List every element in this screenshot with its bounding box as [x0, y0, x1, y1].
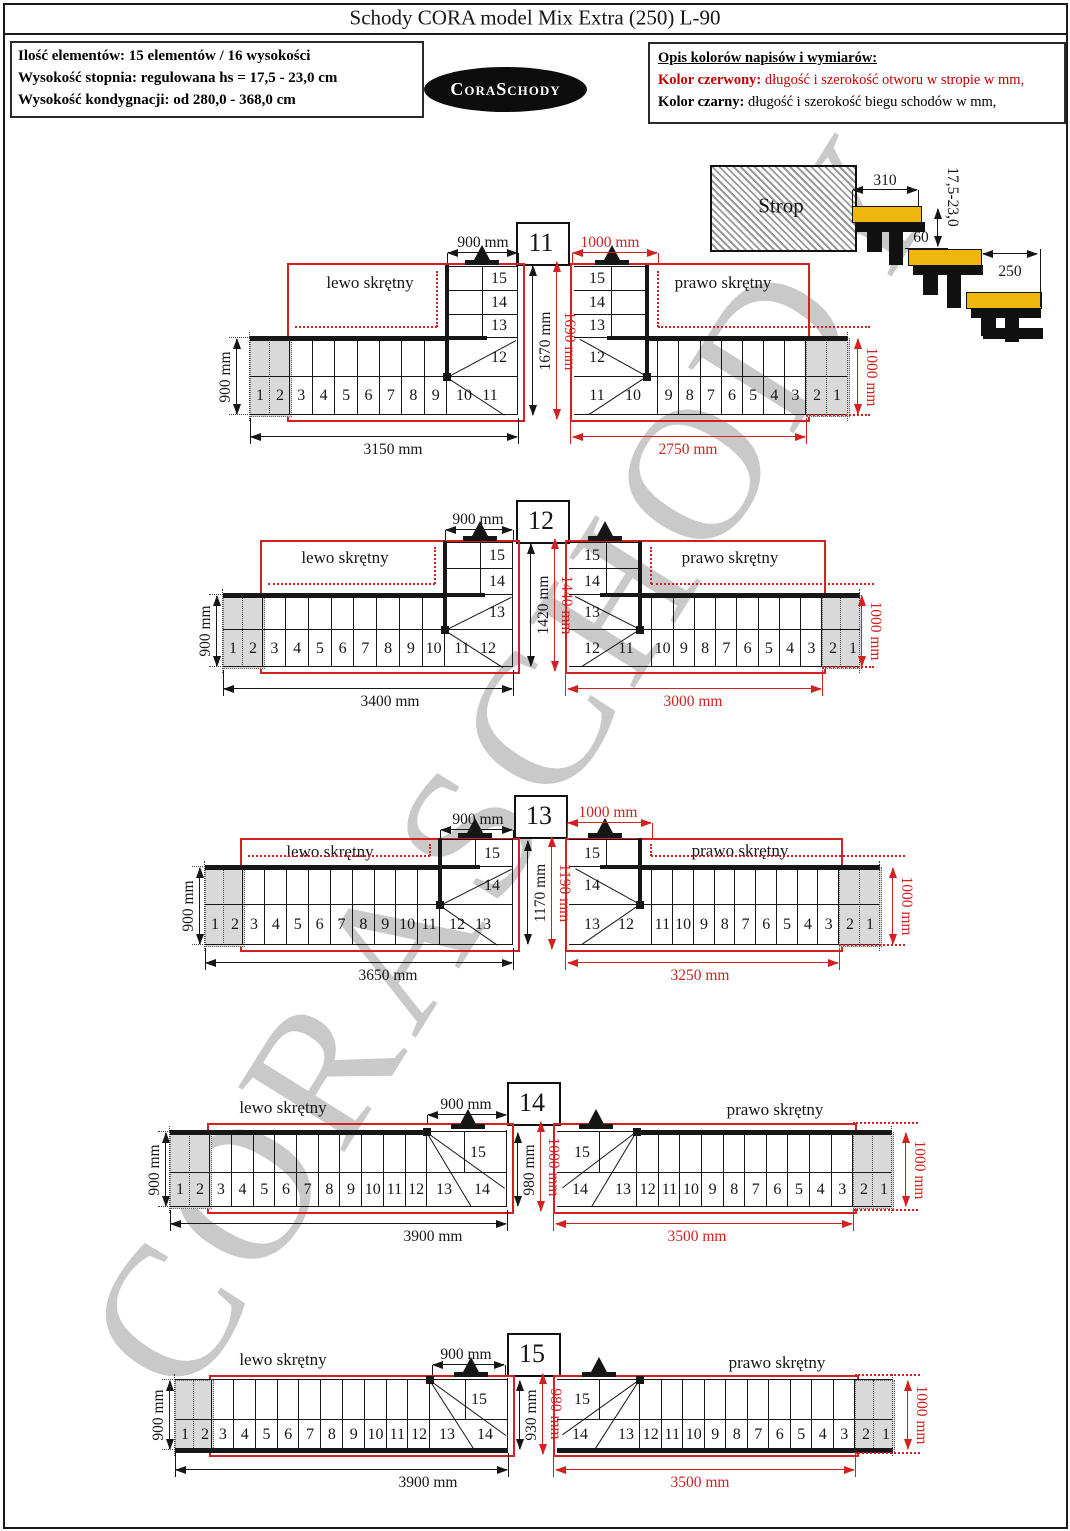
step-number: 6 [762, 916, 770, 934]
h-line [569, 944, 880, 945]
step-number: 11 [665, 1426, 680, 1444]
step-number: 11 [390, 1426, 405, 1444]
step-number: 4 [770, 387, 778, 405]
arrowhead-up [514, 1132, 522, 1143]
v-line [445, 530, 446, 540]
h-line [568, 962, 838, 963]
arrowhead-down [551, 661, 559, 672]
h-line [192, 944, 205, 945]
v-line [353, 595, 354, 667]
arrowhead-up [904, 1380, 912, 1391]
entry-bar [463, 536, 497, 541]
v-line [758, 595, 759, 667]
step-number: 12 [640, 1181, 656, 1199]
h-line [557, 1448, 893, 1453]
v-line [852, 1132, 853, 1207]
h-line [445, 593, 485, 597]
h-line [229, 337, 250, 338]
v-line [744, 1132, 745, 1207]
arrowhead-left [572, 433, 583, 441]
h-line [651, 583, 874, 585]
v-line [736, 595, 737, 667]
step-number: 11 [589, 387, 604, 405]
v-line [852, 190, 853, 206]
v-line [611, 267, 612, 338]
v-line [480, 543, 481, 595]
arrowhead-right [1027, 250, 1038, 258]
arrowhead-down [516, 1439, 524, 1450]
dim-label: 3000 mm [664, 693, 723, 711]
v-line [339, 1132, 340, 1207]
arrowhead-up [196, 867, 204, 878]
v-line [679, 1132, 680, 1207]
v-line [787, 1132, 788, 1207]
step-number: 1 [833, 387, 841, 405]
v-line [255, 1380, 256, 1450]
step-number: 6 [316, 916, 324, 934]
h-line [170, 1206, 507, 1207]
tread-2 [908, 249, 982, 266]
v-line [395, 867, 396, 945]
v-line [513, 530, 514, 540]
h-line [853, 1209, 918, 1211]
v-line [776, 867, 777, 945]
h-line [905, 248, 948, 249]
v-line [296, 1132, 297, 1207]
arrowhead-down [902, 1196, 910, 1207]
v-line [233, 1380, 234, 1450]
v-line [651, 595, 652, 667]
step-number: 12 [408, 1181, 424, 1199]
step-number: 1 [880, 1181, 888, 1199]
v-line [308, 595, 309, 667]
step-number: 11 [655, 916, 670, 934]
entry-bar [454, 1372, 488, 1377]
step-number: 4 [817, 1181, 825, 1199]
v-line [658, 1132, 659, 1207]
step-number: 3 [791, 387, 799, 405]
step-number: 15 [574, 1391, 590, 1409]
step-number: 15 [470, 1144, 486, 1162]
arrowhead-down [524, 934, 532, 945]
v-line [264, 867, 265, 945]
v-line [374, 867, 375, 945]
legend-heading: Opis kolorów napisów i wymiarów: [658, 48, 1064, 70]
v-line [892, 868, 893, 944]
v-line [565, 948, 566, 970]
v-line [693, 867, 694, 945]
h-line [175, 1379, 430, 1380]
v-line [331, 595, 332, 667]
h-line [440, 865, 480, 869]
step-number: 8 [359, 916, 367, 934]
h-line [175, 1419, 508, 1420]
h-line [250, 414, 518, 415]
diagram-label: prawo skrętny [727, 1100, 824, 1120]
h-line [171, 1223, 506, 1224]
legend-red-line: Kolor czerwony: długość i szerokość otwo… [658, 70, 1064, 92]
dim-label: 900 mm [146, 1144, 164, 1195]
arrowhead-right [811, 685, 822, 693]
step-number: 9 [432, 387, 440, 405]
v-line [859, 867, 860, 945]
dim-label: 1000 mm [581, 234, 640, 252]
landing-steps [822, 595, 862, 669]
h-line [445, 542, 513, 543]
step-number: 15 [574, 1144, 590, 1162]
v-line [873, 1380, 874, 1450]
dim-label: 1000 mm [910, 1140, 928, 1199]
v-line [512, 838, 513, 945]
v-line [747, 1380, 748, 1450]
arrowhead-up [551, 538, 559, 549]
h-line [600, 865, 640, 869]
arrowhead-left [175, 1466, 186, 1474]
h-line [557, 1419, 893, 1420]
v-line [723, 1132, 724, 1207]
step-number: 3 [270, 640, 278, 658]
step-number: 13 [491, 317, 507, 335]
diagram-label: lewo skrętny [286, 842, 373, 862]
v-line [298, 1380, 299, 1450]
h-line [822, 666, 874, 668]
info-line-step-height: Wysokość stopnia: regulowana hs = 17,5 -… [18, 68, 422, 90]
entry-bar [458, 833, 492, 838]
h-line [447, 336, 487, 340]
step-number: 7 [304, 1181, 312, 1199]
arrowhead-up [524, 840, 532, 851]
step-number: 5 [749, 387, 757, 405]
h-line [640, 593, 860, 598]
h-line [158, 1131, 170, 1132]
v-line [892, 1374, 893, 1456]
v-line [407, 1380, 408, 1450]
step-number: 13 [584, 916, 600, 934]
step-number: 4 [239, 1181, 247, 1199]
arrowhead-right [496, 1220, 507, 1228]
step-number: 4 [819, 1426, 827, 1444]
v-line [482, 267, 483, 338]
arrowhead-left [250, 433, 261, 441]
v-line [417, 867, 418, 945]
v-line [249, 332, 250, 421]
variant-number: 15 [519, 1339, 545, 1369]
arrowhead-right [647, 249, 658, 257]
run-depth-dim: 980 mm [521, 1144, 539, 1195]
v-line [891, 1126, 892, 1213]
step-number: 5 [263, 1426, 271, 1444]
step-number: 7 [742, 916, 750, 934]
step-number: 4 [272, 916, 280, 934]
step-number: 14 [572, 1426, 588, 1444]
v-line [320, 1380, 321, 1450]
v-line [204, 861, 205, 951]
v-line [811, 1380, 812, 1450]
step-number: 10 [686, 1426, 702, 1444]
run-depth-dim: 1420 mm [535, 576, 553, 635]
step-number: 15 [584, 547, 600, 565]
h-line [855, 1452, 920, 1454]
dim-label: 900 mm [180, 880, 198, 931]
step-number: 9 [709, 1181, 717, 1199]
h-line [209, 594, 223, 595]
v-line [242, 867, 243, 945]
arrowhead-down [553, 409, 561, 420]
step-number: 8 [686, 387, 694, 405]
v-line [650, 547, 652, 584]
step-number: 5 [765, 640, 773, 658]
step-number: 12 [480, 640, 496, 658]
v-line [694, 595, 695, 667]
variant-number: 11 [528, 228, 553, 258]
dim-label: 900 mm [150, 1389, 168, 1440]
dim-label: 1000 mm [897, 877, 915, 936]
arrowhead-left [205, 959, 216, 967]
v-line [506, 1130, 507, 1207]
arrowhead-left [223, 685, 234, 693]
v-line [518, 253, 519, 263]
dim-label: 1000 mm [579, 804, 638, 822]
h-line [250, 336, 447, 341]
arrowhead-left [170, 1220, 181, 1228]
step-number: 14 [491, 294, 507, 312]
v-line [840, 595, 841, 667]
dim-label: 900 mm [440, 1096, 491, 1114]
v-line [565, 670, 566, 696]
v-line [540, 1122, 541, 1211]
arrowhead-up [527, 543, 535, 554]
arrowhead-right [795, 433, 806, 441]
step-number: 6 [284, 1426, 292, 1444]
arrowhead-left [982, 250, 993, 258]
step-number: 12 [584, 640, 600, 658]
h-line [569, 629, 860, 630]
h-line [428, 1114, 506, 1115]
dim-label: 900 mm [457, 234, 508, 252]
v-line [854, 1380, 855, 1450]
step-number: 12 [643, 1426, 659, 1444]
step-number: 11 [387, 1181, 402, 1199]
step-number: 6 [282, 1181, 290, 1199]
arrowhead-up [553, 261, 561, 272]
h-line [205, 944, 513, 945]
v-line [427, 1115, 428, 1123]
step-number: 8 [384, 640, 392, 658]
step-number: 15 [489, 547, 505, 565]
step-number: 5 [783, 916, 791, 934]
v-line [475, 840, 476, 867]
v-line [658, 253, 659, 263]
arrowhead-left [567, 685, 578, 693]
step-number: 10 [368, 1426, 384, 1444]
step-number: 4 [241, 1426, 249, 1444]
v-line [189, 1132, 190, 1207]
v-line [383, 1132, 384, 1207]
step-number: 13 [618, 1426, 634, 1444]
step-number: 2 [231, 916, 239, 934]
run-depth-dim: 1670 mm [537, 311, 555, 370]
arrowhead-up [537, 1121, 545, 1132]
step-number: 14 [489, 573, 505, 591]
diagram-label: prawo skrętny [682, 548, 779, 568]
v-line [236, 339, 237, 414]
step-number: 8 [701, 640, 709, 658]
step-number: 7 [306, 1426, 314, 1444]
arrowhead-left [427, 1111, 438, 1119]
landing-steps [223, 595, 265, 669]
h-line [855, 1374, 920, 1376]
step-number: 7 [752, 1181, 760, 1199]
h-line [206, 962, 512, 963]
arrowhead-up [858, 595, 866, 606]
v-line [530, 544, 531, 666]
diagram-label: prawo skrętny [675, 273, 772, 293]
h-line [640, 1379, 893, 1380]
tread-1 [852, 206, 922, 223]
step-number: 12 [411, 1426, 427, 1444]
v-line [714, 867, 715, 945]
v-line [1040, 249, 1041, 307]
entry-bar [595, 260, 629, 265]
color-legend-box: Opis kolorów napisów i wymiarów: Kolor c… [648, 42, 1066, 124]
v-line [809, 1132, 810, 1207]
arrowhead-left [440, 826, 451, 834]
step-number: 5 [316, 640, 324, 658]
h-line [556, 1469, 854, 1470]
h-line [573, 252, 657, 253]
v-line [330, 867, 331, 945]
document-page: CORASCHODY Schody CORA model Mix Extra (… [0, 0, 1070, 1531]
step-number: 2 [860, 1181, 868, 1199]
step-number: 9 [711, 1426, 719, 1444]
v-line [512, 541, 513, 667]
v-line [426, 1132, 427, 1207]
step-number: 1 [181, 1426, 189, 1444]
step-number: 9 [350, 1426, 358, 1444]
step-number: 6 [776, 1426, 784, 1444]
h-line [295, 326, 437, 328]
v-line [673, 595, 674, 667]
v-line [527, 841, 528, 944]
step-number: 9 [700, 916, 708, 934]
step-number: 1 [849, 640, 857, 658]
arrowhead-down [514, 1196, 522, 1207]
newel-post [426, 1376, 434, 1384]
v-line [682, 1380, 683, 1450]
step-number: 5 [294, 916, 302, 934]
v-line [405, 1132, 406, 1207]
step-number: 4 [293, 640, 301, 658]
dim-label: 3500 mm [671, 1474, 730, 1492]
landing-steps [250, 338, 292, 417]
v-line [766, 1132, 767, 1207]
v-line [286, 867, 287, 945]
h-line [162, 1379, 175, 1380]
nosing-dim: 60 [913, 229, 929, 247]
v-line [661, 1380, 662, 1450]
arrowhead-up [902, 1132, 910, 1143]
v-line [636, 1132, 637, 1207]
h-line [647, 336, 848, 341]
landing-steps [205, 867, 245, 947]
v-line [352, 867, 353, 945]
step-number: 9 [347, 1181, 355, 1199]
arrowhead-right [507, 433, 518, 441]
v-line [847, 332, 848, 421]
v-line [657, 271, 659, 327]
newel-post [633, 1128, 641, 1136]
v-line [857, 339, 858, 414]
v-line [361, 1132, 362, 1207]
v-line [638, 838, 642, 905]
v-line [242, 595, 243, 667]
arrowhead-down [233, 404, 241, 415]
info-box: Ilość elementów: 15 elementów / 16 wysok… [10, 41, 424, 118]
arrowhead-down [934, 236, 942, 247]
h-line [205, 865, 440, 870]
newel-post [441, 626, 449, 634]
logo-text: CoraSchody [450, 79, 560, 100]
h-line [569, 568, 640, 569]
title-divider [3, 33, 1066, 35]
step-number: 4 [786, 640, 794, 658]
v-line [253, 1132, 254, 1207]
arrowhead-left [447, 249, 458, 257]
arrowhead-right [844, 1466, 855, 1474]
direction-arrow [588, 1109, 604, 1124]
v-line [308, 867, 309, 945]
info-line-elements: Ilość elementów: 15 elementów / 16 wysok… [18, 46, 422, 68]
dim-label: 3650 mm [359, 967, 418, 985]
h-line [223, 629, 513, 630]
dim-label: 1000 mm [912, 1386, 930, 1445]
v-line [553, 1210, 554, 1231]
v-line [701, 1132, 702, 1207]
step-number: 13 [439, 1426, 455, 1444]
arrowhead-right [502, 526, 513, 534]
step-number: 15 [589, 270, 605, 288]
v-line [376, 595, 377, 667]
arrowhead-left [555, 1466, 566, 1474]
v-line [285, 595, 286, 667]
step-number: 7 [361, 640, 369, 658]
h-line [440, 839, 513, 840]
v-line [725, 1380, 726, 1450]
dim-label: 900 mm [197, 605, 215, 656]
step-number: 1 [256, 387, 264, 405]
v-line [513, 830, 514, 838]
step-number: 1 [211, 916, 219, 934]
v-line [443, 541, 447, 630]
dim-label: 900 mm [217, 351, 235, 402]
dim-label: 3400 mm [361, 693, 420, 711]
step-number: 14 [477, 1426, 493, 1444]
entry-bar [451, 1124, 485, 1129]
step-number: 3 [840, 1426, 848, 1444]
v-line [918, 190, 919, 206]
step-number: 8 [328, 1426, 336, 1444]
arrowhead-up [233, 338, 241, 349]
h-line [251, 436, 517, 437]
arrowhead-down [196, 934, 204, 945]
step-number: 2 [201, 1426, 209, 1444]
arrowhead-down [213, 656, 221, 667]
h-line [175, 1448, 508, 1453]
newel-post [643, 373, 651, 381]
h-line [158, 1206, 170, 1207]
cora-schody-logo: CoraSchody [424, 67, 587, 112]
step-number: 11 [454, 640, 469, 658]
